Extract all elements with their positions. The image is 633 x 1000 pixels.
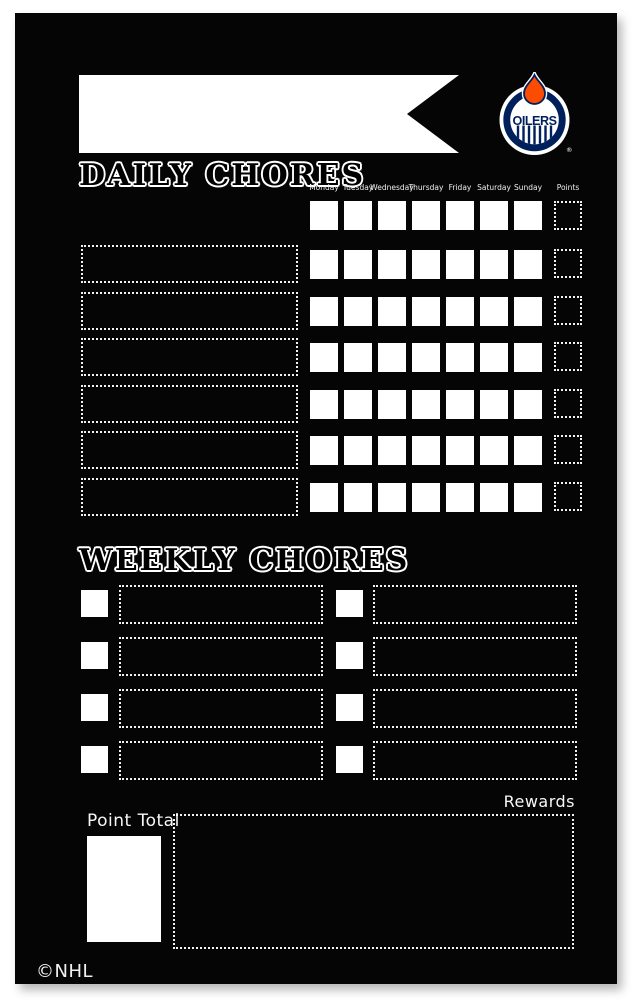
- daily-check-r4-wednesday[interactable]: [378, 390, 406, 419]
- daily-check-r2-monday[interactable]: [310, 297, 338, 326]
- daily-check-r5-friday[interactable]: [446, 436, 474, 465]
- daily-check-r0-friday[interactable]: [446, 201, 474, 230]
- daily-check-r5-wednesday[interactable]: [378, 436, 406, 465]
- weekly-check-r4-c1[interactable]: [81, 746, 108, 773]
- daily-check-r4-sunday[interactable]: [514, 390, 542, 419]
- weekly-check-r2-c2[interactable]: [336, 642, 363, 669]
- daily-check-r4-monday[interactable]: [310, 390, 338, 419]
- daily-check-r3-thursday[interactable]: [412, 343, 440, 372]
- weekly-chore-field-r3-c1[interactable]: [119, 689, 323, 728]
- daily-check-r6-sunday[interactable]: [514, 483, 542, 512]
- daily-check-r3-wednesday[interactable]: [378, 343, 406, 372]
- daily-check-r6-monday[interactable]: [310, 483, 338, 512]
- daily-check-r0-sunday[interactable]: [514, 201, 542, 230]
- daily-chore-field-3[interactable]: [81, 338, 298, 376]
- daily-check-r0-monday[interactable]: [310, 201, 338, 230]
- daily-check-r2-wednesday[interactable]: [378, 297, 406, 326]
- rewards-box[interactable]: [173, 814, 574, 949]
- daily-check-r0-thursday[interactable]: [412, 201, 440, 230]
- daily-check-r3-monday[interactable]: [310, 343, 338, 372]
- weekly-check-r1-c2[interactable]: [336, 590, 363, 617]
- name-banner[interactable]: [79, 75, 459, 153]
- daily-check-r0-wednesday[interactable]: [378, 201, 406, 230]
- registered-mark: ®: [566, 146, 573, 154]
- daily-check-r6-saturday[interactable]: [480, 483, 508, 512]
- weekly-chore-field-r1-c1[interactable]: [119, 585, 323, 624]
- weekly-chore-field-r2-c1[interactable]: [119, 637, 323, 676]
- daily-check-r2-thursday[interactable]: [412, 297, 440, 326]
- daily-check-r3-sunday[interactable]: [514, 343, 542, 372]
- daily-check-r5-monday[interactable]: [310, 436, 338, 465]
- daily-chore-field-1[interactable]: [81, 245, 298, 283]
- daily-check-r1-tuesday[interactable]: [344, 250, 372, 279]
- daily-check-r2-saturday[interactable]: [480, 297, 508, 326]
- daily-check-r4-friday[interactable]: [446, 390, 474, 419]
- product-photo: OILERS ® DAILY CHORES WEEKLY CHORES Poin…: [0, 0, 633, 1000]
- weekly-chore-field-r4-c1[interactable]: [119, 741, 323, 780]
- daily-check-r4-tuesday[interactable]: [344, 390, 372, 419]
- daily-check-r3-tuesday[interactable]: [344, 343, 372, 372]
- daily-check-r1-sunday[interactable]: [514, 250, 542, 279]
- daily-check-r6-thursday[interactable]: [412, 483, 440, 512]
- weekly-chores-title: WEEKLY CHORES: [79, 546, 409, 576]
- daily-check-r4-saturday[interactable]: [480, 390, 508, 419]
- daily-check-r5-saturday[interactable]: [480, 436, 508, 465]
- oilers-logo: OILERS ®: [496, 72, 574, 160]
- point-total-box[interactable]: [87, 836, 161, 942]
- daily-points-box-r2[interactable]: [554, 296, 582, 325]
- daily-check-r1-thursday[interactable]: [412, 250, 440, 279]
- daily-check-r4-thursday[interactable]: [412, 390, 440, 419]
- daily-points-box-r3[interactable]: [554, 342, 582, 371]
- weekly-chore-field-r4-c2[interactable]: [373, 741, 577, 780]
- daily-chore-field-6[interactable]: [81, 478, 298, 516]
- rewards-label: Rewards: [473, 794, 575, 810]
- daily-points-box-r4[interactable]: [554, 389, 582, 418]
- chore-chart-board: OILERS ® DAILY CHORES WEEKLY CHORES Poin…: [15, 13, 617, 984]
- daily-check-r1-monday[interactable]: [310, 250, 338, 279]
- daily-points-box-r6[interactable]: [554, 482, 582, 511]
- daily-check-r1-wednesday[interactable]: [378, 250, 406, 279]
- daily-check-r3-friday[interactable]: [446, 343, 474, 372]
- daily-check-r2-tuesday[interactable]: [344, 297, 372, 326]
- weekly-check-r2-c1[interactable]: [81, 642, 108, 669]
- weekly-check-r3-c2[interactable]: [336, 694, 363, 721]
- point-total-label: Point Total: [87, 813, 180, 830]
- oil-drop-icon: [524, 75, 545, 104]
- daily-check-r1-saturday[interactable]: [480, 250, 508, 279]
- weekly-chore-field-r3-c2[interactable]: [373, 689, 577, 728]
- weekly-check-r1-c1[interactable]: [81, 590, 108, 617]
- weekly-chore-field-r2-c2[interactable]: [373, 637, 577, 676]
- daily-check-r6-wednesday[interactable]: [378, 483, 406, 512]
- daily-check-r2-sunday[interactable]: [514, 297, 542, 326]
- daily-points-box-r1[interactable]: [554, 249, 582, 278]
- daily-check-r5-sunday[interactable]: [514, 436, 542, 465]
- daily-chore-field-2[interactable]: [81, 292, 298, 330]
- weekly-check-r4-c2[interactable]: [336, 746, 363, 773]
- nhl-copyright: ©NHL: [36, 961, 93, 982]
- daily-check-r6-friday[interactable]: [446, 483, 474, 512]
- daily-check-r6-tuesday[interactable]: [344, 483, 372, 512]
- daily-check-r3-saturday[interactable]: [480, 343, 508, 372]
- daily-check-r0-saturday[interactable]: [480, 201, 508, 230]
- daily-chore-field-4[interactable]: [81, 385, 298, 423]
- daily-check-r0-tuesday[interactable]: [344, 201, 372, 230]
- daily-check-r5-thursday[interactable]: [412, 436, 440, 465]
- daily-points-box-r5[interactable]: [554, 435, 582, 464]
- daily-check-r2-friday[interactable]: [446, 297, 474, 326]
- points-header: Points: [538, 184, 598, 192]
- weekly-check-r3-c1[interactable]: [81, 694, 108, 721]
- daily-check-r1-friday[interactable]: [446, 250, 474, 279]
- weekly-chore-field-r1-c2[interactable]: [373, 585, 577, 624]
- logo-team-text: OILERS: [513, 113, 558, 128]
- daily-check-r5-tuesday[interactable]: [344, 436, 372, 465]
- daily-chore-field-5[interactable]: [81, 431, 298, 469]
- daily-points-box-r0[interactable]: [554, 201, 582, 230]
